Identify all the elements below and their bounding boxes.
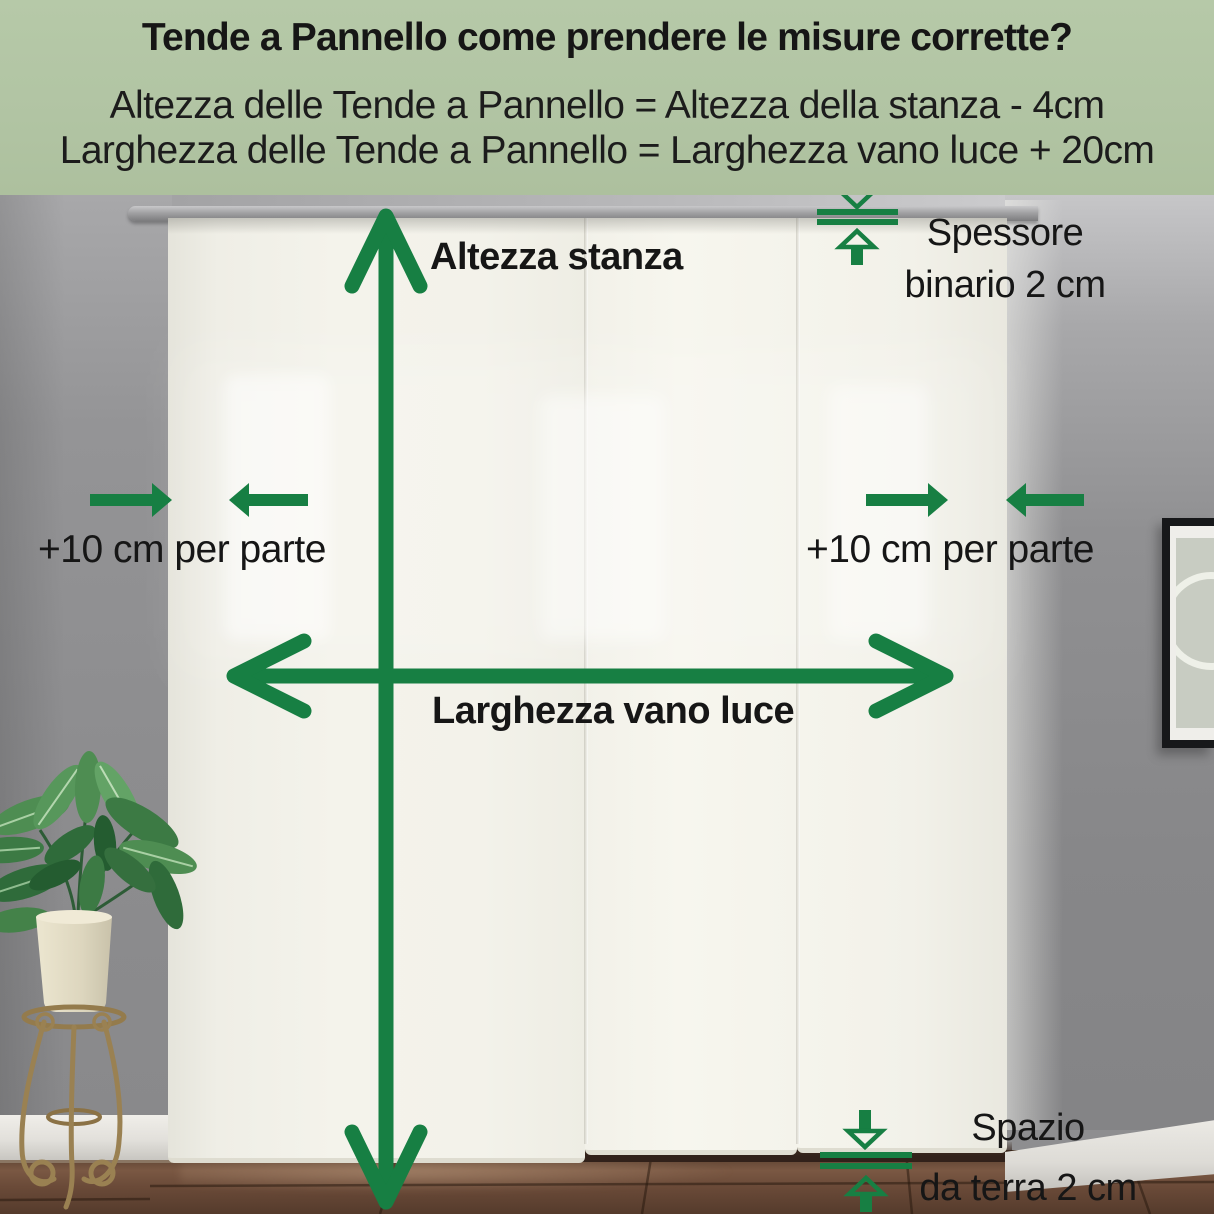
formula-height-line: Altezza delle Tende a Pannello = Altezza… bbox=[0, 84, 1214, 128]
track-thickness-line2: binario 2 cm bbox=[905, 264, 1106, 306]
floor-reflection bbox=[180, 1158, 740, 1192]
left-allowance-label: +10 cm per parte bbox=[38, 528, 326, 572]
light-reflection bbox=[540, 395, 665, 640]
right-allowance-label: +10 cm per parte bbox=[806, 528, 1094, 572]
artwork-circle bbox=[1176, 572, 1214, 670]
floor-gap-label: Spazio da terra 2 cm bbox=[878, 1098, 1178, 1214]
wall-corner-highlight bbox=[1005, 200, 1063, 1130]
light-reflection bbox=[225, 375, 330, 640]
potted-plant-illustration bbox=[0, 735, 215, 1214]
room-height-label: Altezza stanza bbox=[430, 236, 683, 279]
page-title: Tende a Pannello come prendere le misure… bbox=[0, 16, 1214, 60]
opening-width-label: Larghezza vano luce bbox=[432, 690, 794, 733]
formula-width-line: Larghezza delle Tende a Pannello = Largh… bbox=[0, 129, 1214, 173]
track-thickness-line1: Spessore bbox=[927, 212, 1084, 254]
plant-stand bbox=[22, 1007, 124, 1207]
floor-gap-line1: Spazio bbox=[971, 1107, 1084, 1149]
picture-frame bbox=[1162, 518, 1214, 748]
floor-gap-line2: da terra 2 cm bbox=[919, 1167, 1136, 1209]
light-reflection bbox=[828, 385, 928, 640]
header-banner: Tende a Pannello come prendere le misure… bbox=[0, 0, 1214, 195]
frame-mat bbox=[1170, 526, 1214, 740]
track-thickness-label: Spessore binario 2 cm bbox=[850, 207, 1160, 312]
measurement-infographic: Tende a Pannello come prendere le misure… bbox=[0, 0, 1214, 1214]
plant-pot bbox=[36, 910, 112, 1012]
frame-artwork bbox=[1176, 538, 1214, 728]
